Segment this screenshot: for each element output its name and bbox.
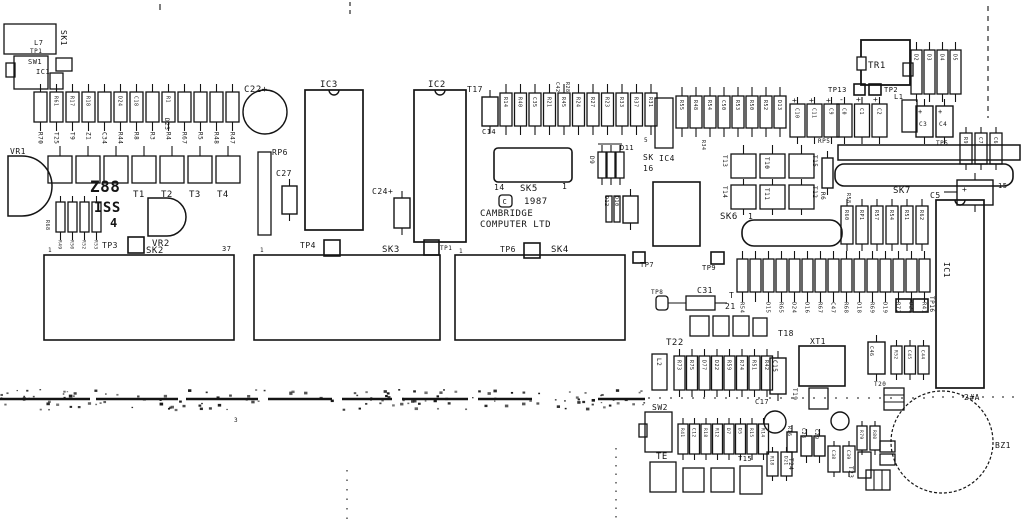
- label-z88: Z88: [90, 177, 120, 196]
- scan-noise-band-dot: [632, 403, 635, 405]
- scan-noise-band-dot: [494, 401, 495, 402]
- scan-noise-band-dot: [365, 403, 367, 405]
- row1-left-lab-5: D24: [117, 96, 123, 107]
- scan-noise-band-dot: [592, 404, 594, 406]
- pair-c38-lab-0: C38: [830, 450, 836, 460]
- label-sk4: SK4: [551, 245, 569, 255]
- row-under-z88-body-0: [56, 202, 65, 232]
- te-comp3: [711, 468, 734, 492]
- c31-body: [686, 296, 715, 310]
- row-above-ic1-body-3: [776, 259, 787, 292]
- diode-bank-lab-3: D5: [952, 54, 958, 61]
- row-right-center-lab-3: C50: [720, 100, 726, 111]
- scan-noise-band-dot: [434, 400, 437, 403]
- row-under-z88-body-1: [68, 202, 77, 232]
- plus-c1: +: [856, 95, 861, 104]
- label-tp4: TP4: [300, 241, 316, 250]
- scan-noise-band-dot: [424, 391, 427, 394]
- row1-left-body-0: [34, 92, 47, 122]
- row-center-lab-4: R45: [560, 97, 566, 108]
- c45-group-lab-0: R52: [893, 350, 899, 360]
- sw2-row-lab-7: R14: [760, 428, 766, 438]
- label-c5: C5: [930, 191, 941, 200]
- row-above-ic1-body-7: [828, 259, 839, 292]
- row1-left-sub-0: R70: [37, 132, 44, 144]
- row-right-center-lab-4: R53: [734, 100, 740, 111]
- label-tp8: TP8: [651, 289, 663, 296]
- row1-left-sub-7: R3: [149, 132, 156, 140]
- row-right-center-lab-2: R54: [706, 100, 712, 111]
- mark-3: 3: [234, 417, 238, 424]
- scan-noise-band-dot: [94, 390, 97, 392]
- plus-c9: +: [826, 96, 831, 105]
- plus-c5: +: [962, 185, 967, 194]
- scan-noise-band-dot: [23, 397, 26, 399]
- row-under-z88-sub-1: R50: [69, 240, 75, 250]
- label-iss4: 4: [110, 216, 118, 230]
- scan-noise-band-dot: [17, 390, 18, 391]
- label-tp13: TP13: [828, 86, 847, 94]
- label-tr1: TR1: [868, 61, 886, 71]
- d9-group-body-1: [607, 152, 615, 178]
- label-sk: SK: [643, 153, 654, 162]
- r9c7c6-lab-0: R9: [962, 137, 968, 144]
- scan-noise-band-dot: [39, 389, 41, 390]
- row-center-lab-0: R14: [502, 97, 508, 108]
- label-tp7: TP7: [640, 261, 654, 269]
- t22-row-lab-5: R74: [738, 360, 744, 371]
- scan-noise-band-dot: [413, 400, 416, 403]
- row-above-ic1-body-4: [789, 259, 800, 292]
- scan-noise-band-dot: [445, 398, 448, 400]
- scan-noise-band-dot: [188, 389, 191, 392]
- scan-noise-band-dot: [105, 393, 107, 394]
- row2-left-body-4: [160, 156, 184, 183]
- scan-noise-band-dot: [23, 396, 25, 397]
- scan-noise-band-dot: [479, 391, 481, 392]
- sk7-bar: [835, 164, 1013, 186]
- scan-noise-band-dot: [584, 392, 586, 394]
- row-right-center-lab-1: R48: [692, 100, 698, 111]
- row1-left-sub-3: Z1: [85, 132, 92, 140]
- row-center-lab-6: R27: [589, 97, 595, 108]
- ic4-body: [653, 182, 700, 246]
- hole-2: [831, 412, 849, 430]
- comp-r6: [822, 158, 833, 188]
- row-above-ic1-sub-0: R54: [739, 302, 745, 314]
- scan-noise-band-dot: [103, 401, 106, 403]
- row-right-center-lab-5: R50: [748, 100, 754, 111]
- label-rp6: RP6: [272, 148, 288, 157]
- d9-group-body-0: [598, 152, 606, 178]
- scan-noise-band-dot: [418, 403, 421, 405]
- row1-left-lab-3: R18: [85, 96, 91, 107]
- row1-left-lab-2: R17: [69, 96, 75, 107]
- row-above-ic1-sub-14: R41: [921, 302, 927, 313]
- row-center-lab-10: R31: [647, 97, 653, 108]
- diode-bank-lab-1: D3: [926, 54, 932, 61]
- pcb-diagram: L7TP1SW1IC1SK1R70R61T25R17T9R18Z1C34D24R…: [0, 0, 1024, 524]
- row2-left-body-3: [132, 156, 156, 183]
- row-right-center-lab-6: R52: [762, 100, 768, 111]
- tr1-notch: [857, 57, 866, 70]
- label-c42: C42: [554, 82, 560, 93]
- label-c27: C27: [276, 169, 292, 178]
- label-bz1: BZ1: [995, 441, 1011, 450]
- scan-noise-band-dot: [448, 402, 451, 404]
- row1-left-sub-12: R47: [229, 132, 236, 144]
- scan-noise-band-dot: [48, 409, 50, 410]
- sw2-notch: [639, 424, 647, 437]
- sk2-pin1: 1: [48, 247, 52, 254]
- scan-noise-band-dot: [578, 399, 580, 401]
- scan-noise-band-dot: [616, 389, 619, 392]
- label-1987: 1987: [524, 197, 548, 207]
- rp6-pack: [258, 152, 271, 235]
- pair-r79-lab-1: R80: [871, 430, 877, 440]
- sk3-connector: [254, 255, 440, 340]
- t18-comp3: [733, 316, 749, 336]
- scan-noise-band-dot: [555, 399, 557, 400]
- scan-noise-band-dot: [384, 390, 387, 393]
- row-right-center-lab-0: R55: [678, 100, 684, 111]
- row1-left-body-4: [98, 92, 111, 122]
- electro-trio-lab-1: C11: [811, 108, 817, 119]
- scan-noise-band-dot: [160, 399, 162, 401]
- plus-c4: +: [938, 108, 943, 116]
- scan-noise-band-dot: [331, 400, 334, 402]
- row-above-ic1-sub-6: R67: [817, 302, 823, 313]
- scan-noise-band-dot: [494, 398, 496, 400]
- scan-noise-band-dot: [200, 408, 203, 410]
- label-t13: T13: [721, 155, 728, 167]
- pair-r18-lab-0: R18: [769, 456, 775, 466]
- scan-noise-band-dot: [577, 401, 580, 404]
- label-t21a: T: [729, 291, 734, 300]
- te-comp4: [740, 466, 762, 494]
- row-above-ic1-body-14: [919, 259, 930, 292]
- row1-left-sub-4: C34: [101, 132, 108, 144]
- scan-noise-band-dot: [592, 399, 595, 402]
- row1-left-body-11: [210, 92, 223, 122]
- pcb-scan-page: L7TP1SW1IC1SK1R70R61T25R17T9R18Z1C34D24R…: [0, 0, 1024, 524]
- t-row-bot-body-2: [789, 185, 814, 209]
- label-tp3: TP3: [102, 241, 118, 250]
- row1-left-body-7: [146, 92, 159, 122]
- scan-noise-band-dot: [484, 405, 487, 407]
- scan-noise-band-dot: [124, 398, 126, 400]
- sw2-row-lab-1: C12: [691, 428, 697, 438]
- label-t12: T12: [811, 186, 818, 198]
- label-sw2: SW2: [652, 403, 668, 412]
- cap-bank-lab-2: C2: [876, 108, 882, 115]
- label-r58: R58: [845, 193, 851, 204]
- scan-noise-band-dot: [255, 389, 257, 391]
- pad-tp4: [324, 240, 340, 256]
- t18-comp4: [753, 318, 767, 336]
- label-t3: T3: [189, 190, 201, 200]
- scan-noise-band-dot: [209, 407, 212, 409]
- scan-noise-band-dot: [67, 391, 68, 392]
- label-cambridge: CAMBRIDGE: [480, 209, 533, 219]
- scan-noise-band-dot: [175, 409, 178, 411]
- row-above-ic1-body-1: [750, 259, 761, 292]
- row-center-lab-9: R37: [633, 97, 639, 108]
- hole-1: [764, 411, 786, 433]
- r60-group-lab-3: R54: [888, 210, 894, 221]
- label-t20: T20: [874, 381, 886, 388]
- row-above-ic1-body-8: [841, 259, 852, 292]
- row-above-ic1-sub-7: C47: [830, 302, 836, 313]
- label-r6: R6: [819, 192, 826, 200]
- label-t10: T10: [763, 157, 770, 169]
- scan-noise-band-dot: [430, 398, 432, 400]
- scan-noise-band-dot: [387, 392, 390, 394]
- row-above-ic1-sub-11: D19: [882, 302, 888, 313]
- r60-group-lab-5: R62: [918, 210, 924, 221]
- scan-noise-band-dot: [179, 401, 182, 403]
- t22-row-lab-2: D77: [701, 360, 707, 371]
- scan-noise-band-dot: [443, 389, 445, 391]
- scan-noise-band-dot: [642, 404, 643, 405]
- label-sk1: SK1: [59, 30, 68, 46]
- sw2-row-lab-6: R15: [748, 428, 754, 438]
- scan-noise-band-dot: [88, 402, 91, 405]
- row-center-lab-5: R24: [575, 97, 581, 108]
- scan-noise-band-dot: [640, 390, 642, 392]
- label-c3: C3: [919, 121, 927, 128]
- row1-left-sub-2: T9: [69, 132, 76, 140]
- scan-noise-band-dot: [63, 393, 65, 394]
- scan-noise-band-dot: [116, 394, 118, 396]
- scan-noise-band-dot: [400, 403, 403, 406]
- row-above-ic1-body-9: [854, 259, 865, 292]
- copyright-c: C: [503, 198, 508, 206]
- scan-noise-band-dot: [385, 395, 388, 397]
- scan-noise-band-dot: [529, 400, 532, 402]
- label-sk5: SK5: [520, 184, 538, 194]
- row-above-ic1-sub-10: R69: [869, 302, 875, 313]
- row1-left-sub-9: R67: [181, 132, 188, 144]
- label-t22: T22: [666, 338, 684, 348]
- t18-comp2: [713, 316, 729, 336]
- label-d11: D11: [620, 144, 634, 152]
- t-row-top-body-2: [789, 154, 814, 178]
- scan-noise-band-dot: [246, 399, 248, 401]
- row-center-lab-8: R33: [618, 97, 624, 108]
- label-ic2: IC2: [428, 80, 446, 90]
- label-tp9: TP9: [702, 264, 716, 272]
- scan-noise-band-dot: [137, 395, 139, 397]
- cap-bank-lab-1: C1: [858, 108, 864, 115]
- scan-noise-band-dot: [569, 391, 571, 392]
- r60-group-lab-0: R60: [843, 210, 849, 221]
- diode-bank-lab-2: D4: [939, 54, 945, 61]
- scan-noise-band-dot: [304, 392, 307, 395]
- cap-bank-lab-0: C0: [841, 108, 847, 115]
- scan-noise-band-dot: [370, 397, 372, 399]
- row-above-ic1-body-12: [893, 259, 904, 292]
- row-under-z88-body-2: [80, 202, 89, 232]
- scan-noise-band-dot: [69, 395, 73, 398]
- comp-striped: [884, 388, 904, 410]
- plus-c3: +: [918, 108, 923, 116]
- cap-c22: [243, 90, 287, 134]
- label-sk3: SK3: [382, 245, 400, 255]
- label-c14: C14: [482, 128, 496, 136]
- scan-noise-band-dot: [407, 403, 409, 405]
- label-t17: T17: [467, 85, 483, 94]
- plus-c11: +: [809, 96, 814, 105]
- label-l7: L7: [34, 39, 43, 47]
- scan-noise-band-dot: [613, 399, 615, 400]
- row1-left-lab-6: C18: [133, 96, 139, 107]
- label-sk16: 16: [643, 164, 654, 173]
- label-c46: C46: [868, 346, 874, 357]
- scan-noise-band-dot: [320, 397, 323, 400]
- comp-bottom: [866, 470, 890, 490]
- pad-tp8: [656, 296, 668, 310]
- row-center-lab-3: R21: [546, 97, 552, 108]
- label-te: TE: [656, 452, 668, 462]
- label-15: 15: [998, 182, 1007, 190]
- row1-left-sub-10: R5: [197, 132, 204, 140]
- tall-comp: [655, 98, 673, 148]
- row-above-ic1-body-5: [802, 259, 813, 292]
- scan-noise-band-dot: [0, 394, 3, 396]
- cap-c14: [482, 97, 498, 126]
- label-xt1: XT1: [810, 337, 826, 346]
- scan-noise-band-dot: [398, 389, 400, 391]
- label-vr1: VR1: [10, 147, 26, 156]
- scan-noise-band-dot: [171, 406, 174, 409]
- row-above-ic1-sub-13: D21: [908, 302, 914, 313]
- row1-left-sub-8: R4: [165, 132, 172, 140]
- sk2-pin37: 37: [222, 245, 231, 253]
- label-tp6: TP6: [500, 245, 516, 254]
- scan-noise-band-dot: [639, 392, 641, 394]
- scan-noise-band-dot: [100, 402, 102, 404]
- scan-noise-band-dot: [600, 395, 602, 396]
- scan-noise-band-dot: [603, 406, 606, 408]
- scan-noise-band-dot: [70, 406, 73, 408]
- scan-noise-band-dot: [168, 408, 170, 410]
- row2-left-body-5: [188, 156, 212, 183]
- scan-noise-band-dot: [201, 403, 203, 404]
- scan-noise-band-dot: [4, 404, 6, 406]
- row-center-lab-2: C35: [531, 97, 537, 108]
- row-above-ic1-sub-12: R72: [895, 302, 901, 313]
- scan-noise-band-dot: [217, 396, 220, 398]
- scan-noise-band-dot: [392, 404, 395, 406]
- row-above-ic1-body-10: [867, 259, 878, 292]
- scan-noise-band-dot: [415, 407, 418, 410]
- sk4-pin1: 1: [459, 248, 463, 255]
- cap-d10: [623, 196, 638, 223]
- pair-c38-lab-1: C39: [845, 450, 851, 460]
- label-t1: T1: [133, 190, 145, 200]
- scan-noise-band-dot: [601, 402, 602, 403]
- scan-noise-band-dot: [356, 395, 358, 396]
- label-t21b: 21: [725, 302, 736, 311]
- scan-noise-band-dot: [437, 395, 440, 397]
- row-under-z88-sub-3: R53: [93, 240, 99, 250]
- row1-left-body-10: [194, 92, 207, 122]
- scan-noise-band-dot: [488, 392, 491, 395]
- pair-r79-lab-0: R79: [858, 430, 864, 440]
- row-above-ic1-sub-2: D15: [765, 302, 771, 313]
- d9-group-body-2: [616, 152, 624, 178]
- label-ic1-right: IC1: [942, 262, 951, 278]
- t22-row-lab-7: R42: [763, 360, 769, 371]
- label-ic3: IC3: [320, 80, 338, 90]
- scan-noise-band-dot: [28, 398, 30, 399]
- row1-left-sub-11: R48: [213, 132, 220, 144]
- t18-comp1: [690, 316, 709, 336]
- scan-noise-band-dot: [251, 401, 254, 404]
- label-t23: T23: [847, 466, 854, 478]
- l1-body: [902, 100, 917, 132]
- scan-noise-band-dot: [402, 398, 404, 399]
- label-c15: C15: [771, 360, 778, 372]
- t22-row-lab-3: D22: [713, 360, 719, 371]
- scan-noise-band-dot: [365, 391, 367, 393]
- label-c4: C4: [939, 121, 947, 128]
- scan-noise-band-dot: [229, 395, 232, 397]
- label-2ha: 2#A: [964, 393, 980, 402]
- scan-noise-band-dot: [164, 395, 167, 398]
- scan-noise-band-dot: [413, 390, 416, 392]
- label-ic4: IC4: [659, 154, 675, 163]
- ic3: [305, 90, 363, 230]
- r60-group-lab-4: R51: [903, 210, 909, 221]
- r9c7c6-lab-2: C6: [992, 137, 998, 144]
- scan-noise-band-dot: [247, 395, 250, 398]
- scan-noise-band-dot: [402, 399, 404, 401]
- row-center-lab-7: R23: [604, 97, 610, 108]
- scan-noise-band-dot: [564, 400, 566, 401]
- scan-noise-band-dot: [536, 402, 539, 404]
- row-right-center-lab-7: D13: [776, 100, 782, 111]
- label-t11: T11: [763, 188, 770, 200]
- sk2-connector: [44, 255, 234, 340]
- scan-noise-band-dot: [48, 401, 51, 403]
- rp5-bar: [838, 145, 1020, 160]
- label-sk7: SK7: [893, 186, 911, 196]
- label-r34: R34: [700, 140, 706, 151]
- label-t15b: T15: [738, 455, 752, 463]
- row-above-ic1-sub-9: D18: [856, 302, 862, 313]
- scan-noise-band-dot: [264, 390, 266, 392]
- minus-c0: -: [839, 95, 844, 104]
- scan-noise-band-dot: [522, 403, 525, 406]
- sk16-pin5: 5: [644, 137, 648, 144]
- row-above-ic1-body-2: [763, 259, 774, 292]
- ic1-right: [936, 200, 984, 388]
- label-t4: T4: [217, 190, 229, 200]
- scan-noise-band-dot: [354, 392, 356, 394]
- scan-noise-band-dot: [343, 409, 346, 411]
- c45-group-lab-2: C44: [920, 350, 926, 360]
- sk5-shape: [494, 148, 572, 182]
- r60-group-lab-1: RP1: [858, 210, 864, 221]
- sw2-row-lab-4: D7: [725, 428, 731, 434]
- sw2-body: [645, 412, 672, 452]
- scan-noise-band-dot: [505, 405, 508, 408]
- label-computer-ltd: COMPUTER LTD: [480, 220, 551, 230]
- scan-noise-band-dot: [132, 407, 134, 408]
- row1-left-lab-1: R61: [53, 96, 59, 107]
